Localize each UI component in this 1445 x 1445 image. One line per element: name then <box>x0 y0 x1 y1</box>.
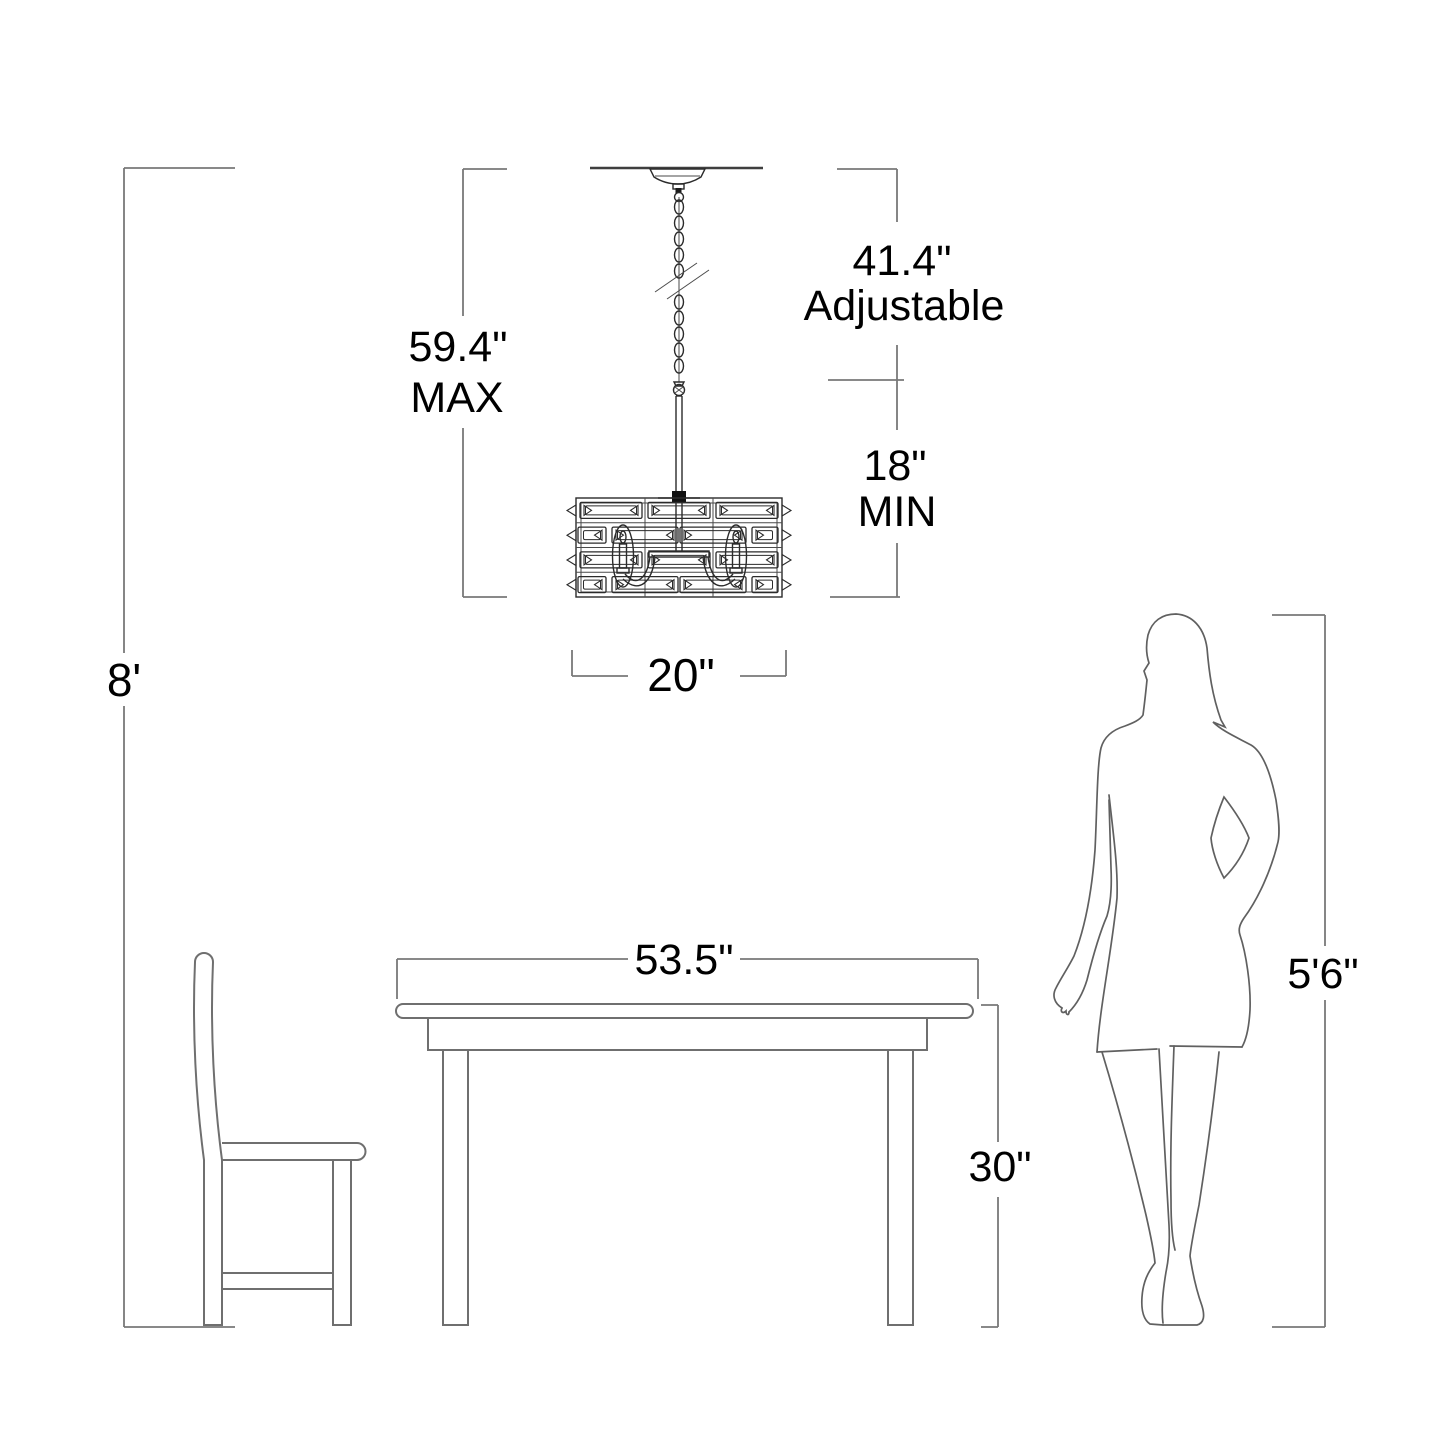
dim-label-min-sub: MIN <box>858 488 937 536</box>
crystal-baton <box>584 580 601 589</box>
dim-label-person-height: 5'6" <box>1287 950 1358 998</box>
crystal-baton <box>586 555 637 564</box>
person-leg-inner <box>1159 1049 1169 1323</box>
person-hem <box>1097 1049 1157 1052</box>
crystal-baton <box>716 502 778 518</box>
table-apron <box>428 1018 927 1050</box>
table-top <box>396 1004 973 1018</box>
dim-ceiling-height: 8' <box>107 168 235 1327</box>
dim-fixture-max: 59.4" MAX <box>409 169 508 597</box>
person-hand <box>1061 1008 1069 1015</box>
crystal-baton <box>648 552 710 568</box>
dim-label-fixture-max-sub: MAX <box>410 374 503 422</box>
chandelier-cage <box>567 498 791 597</box>
crystal-baton <box>584 531 601 540</box>
chandelier <box>567 169 791 597</box>
person-leg-inner <box>1171 1046 1175 1250</box>
dim-label-fixture-width: 20" <box>647 649 715 701</box>
dim-fixture-width: 20" <box>572 649 786 701</box>
dining-table <box>396 1004 973 1325</box>
dim-label-table-width: 53.5" <box>635 936 734 984</box>
dim-person-height: 5'6" <box>1272 615 1359 1327</box>
crystal-facet <box>567 579 576 590</box>
chandelier-downrod <box>658 396 700 503</box>
person-hem <box>1170 1046 1242 1047</box>
crystal-facet <box>782 579 791 590</box>
crystal-facet <box>782 555 791 566</box>
person-silhouette <box>1054 614 1279 1325</box>
person-hip-gap <box>1211 797 1249 878</box>
dim-min-height: 18" MIN <box>830 442 936 597</box>
crystal-facet <box>567 505 576 516</box>
dim-label-min: 18" <box>863 442 926 490</box>
dim-label-table-height: 30" <box>968 1143 1031 1191</box>
chair-back-and-leg <box>194 953 222 1325</box>
dimension-diagram: 8' 59.4" MAX 41.4" Adjustable 18" MIN <box>0 0 1445 1445</box>
table-leg-right <box>888 1050 913 1325</box>
dim-table-height: 30" <box>968 1005 1031 1327</box>
dining-chair <box>194 953 365 1325</box>
dim-label-adjustable: 41.4" <box>853 237 952 285</box>
crystal-baton <box>654 506 705 515</box>
crystal-baton <box>722 506 773 515</box>
crystal-facet <box>567 555 576 566</box>
dim-label-adjustable-sub: Adjustable <box>804 282 1005 330</box>
person-leg-left <box>1102 1052 1163 1325</box>
crystal-facet <box>782 530 791 541</box>
dim-label-fixture-max: 59.4" <box>409 323 508 371</box>
crystal-facet <box>782 505 791 516</box>
table-leg-left <box>443 1050 468 1325</box>
person-skirt-left <box>1097 795 1117 1052</box>
chain-break-mark <box>655 263 697 292</box>
diagram-svg: 8' 59.4" MAX 41.4" Adjustable 18" MIN <box>0 0 1445 1445</box>
chandelier-chain <box>655 197 709 396</box>
crystal-facet <box>567 530 576 541</box>
chair-seat <box>222 1143 366 1160</box>
crystal-baton <box>648 502 710 518</box>
chandelier-canopy <box>650 169 705 202</box>
chain-break-mark <box>667 270 709 299</box>
dim-adjustable: 41.4" Adjustable <box>804 169 1005 430</box>
dim-table-width: 53.5" <box>397 936 978 999</box>
dim-label-ceiling-height: 8' <box>107 654 141 706</box>
crystal-baton <box>586 506 637 515</box>
candle-arms <box>623 503 735 586</box>
chair-front-leg <box>333 1160 351 1325</box>
crystal-baton <box>580 502 642 518</box>
